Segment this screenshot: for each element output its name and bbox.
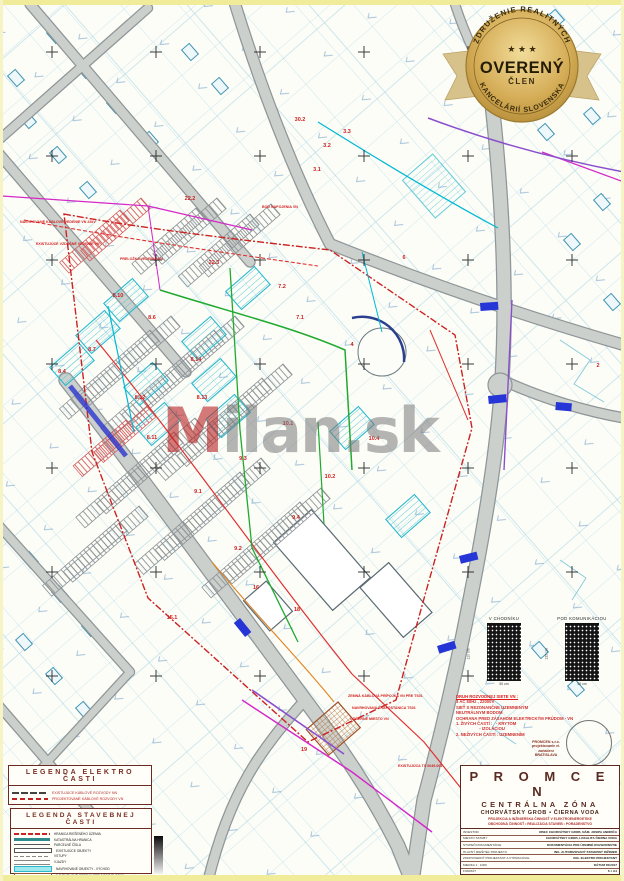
title-block-table: INVESTOROBEC CHORVÁTSKY GROB, NÁM. JOSIP… xyxy=(461,829,619,875)
scan-edge-left xyxy=(0,0,3,881)
legend-label: KATASTRÁLNA HRANICA xyxy=(54,838,92,842)
title-block-row: HLAVNÝ RIEŠITEĽ PROJEKTUING. AUTORIZOVAN… xyxy=(461,849,619,856)
logo-stamp-line: projektovanie el. zariadení xyxy=(524,744,568,753)
legend-elektro-title: LEGENDA ELEKTRO ČASTI xyxy=(9,766,151,786)
title-block: P R O M C E N CENTRÁLNA ZÓNA CHORVÁTSKY … xyxy=(460,765,620,877)
trench-height-dim: 110 cm xyxy=(466,649,470,660)
project-place: CHORVÁTSKY GROB • ČIERNA VODA xyxy=(463,810,617,816)
title-block-row-value: CHORVÁTSKY GROB, LOKALITA ČIERNA VODA xyxy=(546,836,617,840)
title-block-row-value: OBEC CHORVÁTSKY GROB, NÁM. JOSIPA ANDRIČ… xyxy=(539,830,617,834)
watermark-first-letter: M xyxy=(162,394,222,467)
trench-label: POD KOMUNIKÁCIOU xyxy=(547,616,617,621)
legend-label: NAVRHOVANÉ OBJEKTY - VÝCHOD xyxy=(56,867,110,871)
legend-row: EXISTUJÚCE OBJEKTY xyxy=(14,848,148,853)
title-block-row-value: ING. AUTORIZOVANÝ STAVEBNÝ INŽINIER xyxy=(554,850,617,854)
legend-stavebna: LEGENDA STAVEBNEJ ČASTI HRANICA RIEŠENÉH… xyxy=(10,808,152,874)
title-block-project: P R O M C E N CENTRÁLNA ZÓNA CHORVÁTSKY … xyxy=(461,766,619,829)
legend-swatch-sw-vstupy xyxy=(14,856,50,858)
company-activity-line: OBCHODNÁ ČINNOSŤ • REALIZÁCIA STAVIEB • … xyxy=(463,822,617,826)
trench-detail-sidewalk: V CHODNÍKU 110 cm 50 cm xyxy=(469,616,539,686)
badge-stars: ★ ★ ★ xyxy=(507,44,536,54)
print-calibration-bar xyxy=(154,836,163,874)
title-block-row: MIESTO STAVBYCHORVÁTSKY GROB, LOKALITA Č… xyxy=(461,836,619,843)
project-zone: CENTRÁLNA ZÓNA xyxy=(463,800,617,809)
watermark: Milan.sk xyxy=(162,394,438,467)
company-activity-line: PROJEKCIA A INŽINIERSKA ČINNOSŤ V ELEKTR… xyxy=(463,817,617,821)
legend-row: PARCELNÉ ČÍSLA xyxy=(14,843,148,847)
legend-swatch-sw-navrh-obj xyxy=(14,866,52,872)
company-name: P R O M C E N xyxy=(463,769,617,799)
legend-swatch-sw-parcel xyxy=(14,844,50,845)
title-block-row-label: ZODPOVEDNÝ PROJEKTANT A VYPRACOVAL xyxy=(463,856,530,860)
legend-label: HRANICA RIEŠENÉHO ÚZEMIA xyxy=(54,832,101,836)
title-block-row-value: DOKUMENTÁCIA PRE ÚZEMNÉ ROZHODNUTIE xyxy=(547,843,617,847)
legend-label: EXISTUJÚCE KÁBLOVÉ ROZVODY NN xyxy=(52,791,117,795)
watermark-rest: ilan.sk xyxy=(222,394,438,467)
legend-swatch-sw-exist xyxy=(14,848,52,853)
title-block-row-value: DÁTUM 05/2017 xyxy=(594,863,617,867)
title-block-row: STUPEŇ DOKUMENTÁCIEDOKUMENTÁCIA PRE ÚZEM… xyxy=(461,842,619,849)
legend-swatch-sw-exist-nn xyxy=(12,792,48,794)
legend-label: PARCELNÉ ČÍSLA xyxy=(54,843,81,847)
title-block-row-label: HLAVNÝ RIEŠITEĽ PROJEKTU xyxy=(463,850,507,854)
title-block-row-label: MIESTO STAVBY xyxy=(463,836,487,840)
legend-row: EXISTUJÚCE KÁBLOVÉ ROZVODY NN xyxy=(12,791,148,795)
legend-swatch-sw-boundary xyxy=(14,833,50,835)
title-block-row-label: MIERKA 1 : 1000 xyxy=(463,863,487,867)
legend-row: VSTUPY xyxy=(14,854,148,858)
legend-swatch-sw-proj-nn xyxy=(12,798,48,801)
legend-elektro-rows: EXISTUJÚCE KÁBLOVÉ ROZVODY NNPROJEKTOVAN… xyxy=(9,786,151,806)
badge-main-text: OVERENÝ xyxy=(480,58,564,77)
certified-member-badge: ZDRUŽENIE REALITNÝCH KANCELÁRIÍ SLOVENSK… xyxy=(437,4,607,126)
title-block-row-label: STUPEŇ DOKUMENTÁCIE xyxy=(463,843,501,847)
title-block-row-value: 6 × A4 xyxy=(608,869,617,873)
title-block-row-value: ING. ELEKTRO PROJEKTANT xyxy=(573,856,617,860)
trench-detail-road: POD KOMUNIKÁCIOU 125 cm 50 cm xyxy=(547,616,617,686)
trench-section-sidewalk xyxy=(487,623,521,681)
legend-stavebna-rows: HRANICA RIEŠENÉHO ÚZEMIAKATASTRÁLNA HRAN… xyxy=(11,829,151,881)
title-block-row: MIERKA 1 : 1000DÁTUM 05/2017 xyxy=(461,862,619,869)
scan-edge-top xyxy=(0,0,624,5)
trench-width-dim: 50 cm xyxy=(469,682,539,686)
legend-label: PROJEKTOVANÉ KÁBLOVÉ ROZVODY VN xyxy=(52,797,123,801)
scan-edge-bottom xyxy=(0,875,624,881)
stamp-circle xyxy=(566,720,612,766)
legend-stavebna-title: LEGENDA STAVEBNEJ ČASTI xyxy=(11,809,151,829)
title-block-row: FORMÁT6 × A4 xyxy=(461,869,619,875)
badge-sub-text: ČLEN xyxy=(508,77,536,86)
title-block-row-label: FORMÁT xyxy=(463,869,476,873)
logo-stamp-line: BRATISLAVA xyxy=(524,753,568,757)
company-logo-stamp: PROMCEN s.r.o.projektovanie el. zariaden… xyxy=(524,740,568,758)
legend-row: NAVRHOVANÉ OBJEKTY - VÝCHOD xyxy=(14,866,148,872)
trench-height-dim: 125 cm xyxy=(545,648,549,659)
legend-swatch-sw-vjazdy xyxy=(14,860,50,865)
legend-row: VJAZDY xyxy=(14,860,148,865)
trench-width-dim: 50 cm xyxy=(547,682,617,686)
legend-swatch-sw-kataster xyxy=(14,838,50,841)
legend-label: EXISTUJÚCE OBJEKTY xyxy=(56,849,91,853)
title-block-row: ZODPOVEDNÝ PROJEKTANT A VYPRACOVALING. E… xyxy=(461,855,619,862)
legend-label: VJAZDY xyxy=(54,860,66,864)
legend-row: HRANICA RIEŠENÉHO ÚZEMIA xyxy=(14,832,148,836)
title-block-row-label: INVESTOR xyxy=(463,830,479,834)
legend-label: VSTUPY xyxy=(54,854,67,858)
trench-label: V CHODNÍKU xyxy=(469,616,539,621)
legend-row: PROJEKTOVANÉ KÁBLOVÉ ROZVODY VN xyxy=(12,797,148,801)
legend-elektro: LEGENDA ELEKTRO ČASTI EXISTUJÚCE KÁBLOVÉ… xyxy=(8,765,152,805)
title-block-row: INVESTOROBEC CHORVÁTSKY GROB, NÁM. JOSIP… xyxy=(461,829,619,836)
scanned-plan-page: 30.23.33.23.122.222.37.27.18.108.68.78.4… xyxy=(0,0,624,881)
trench-section-road xyxy=(565,623,599,681)
legend-row: KATASTRÁLNA HRANICA xyxy=(14,838,148,842)
